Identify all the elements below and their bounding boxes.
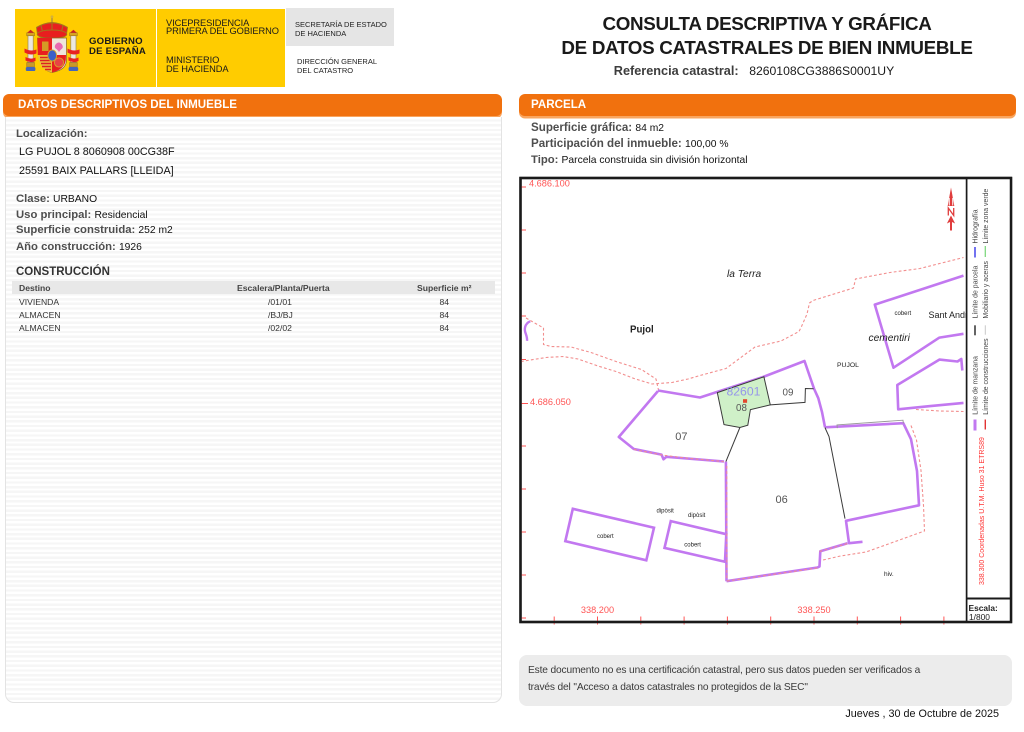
svg-text:PUJOL: PUJOL (837, 362, 859, 369)
svg-text:Hidrografía: Hidrografía (973, 209, 980, 243)
svg-text:cementiri: cementiri (869, 333, 911, 344)
svg-text:Límite de construcciones: Límite de construcciones (983, 338, 990, 415)
svg-text:Límite de manzana: Límite de manzana (973, 356, 980, 415)
svg-text:cobert: cobert (597, 534, 614, 540)
svg-text:hiv.: hiv. (884, 571, 894, 578)
svg-text:Mobiliario y aceras: Mobiliario y aceras (983, 261, 990, 319)
svg-text:82601: 82601 (727, 385, 761, 399)
svg-text:338.250: 338.250 (797, 605, 830, 615)
svg-text:cobert: cobert (895, 311, 912, 317)
svg-text:07: 07 (675, 431, 687, 443)
svg-text:dipòsit: dipòsit (657, 509, 675, 515)
svg-text:Pujol: Pujol (630, 325, 654, 336)
svg-text:4.686.100: 4.686.100 (529, 179, 570, 189)
svg-text:la Terra: la Terra (727, 269, 761, 280)
svg-text:cobert: cobert (684, 543, 701, 549)
svg-text:Límite de parcela: Límite de parcela (973, 265, 980, 318)
svg-text:08: 08 (736, 403, 747, 414)
svg-text:Límite zona verde: Límite zona verde (983, 189, 990, 244)
svg-text:338.200: 338.200 (581, 605, 614, 615)
svg-text:09: 09 (783, 388, 794, 399)
svg-text:1/800: 1/800 (969, 612, 990, 622)
svg-text:dipòsit: dipòsit (688, 513, 706, 519)
svg-text:338.300 Coordenadas U.T.M. Hus: 338.300 Coordenadas U.T.M. Huso 31 ETRS8… (979, 437, 986, 585)
svg-text:4.686.050: 4.686.050 (530, 397, 571, 407)
svg-text:06: 06 (776, 494, 788, 506)
